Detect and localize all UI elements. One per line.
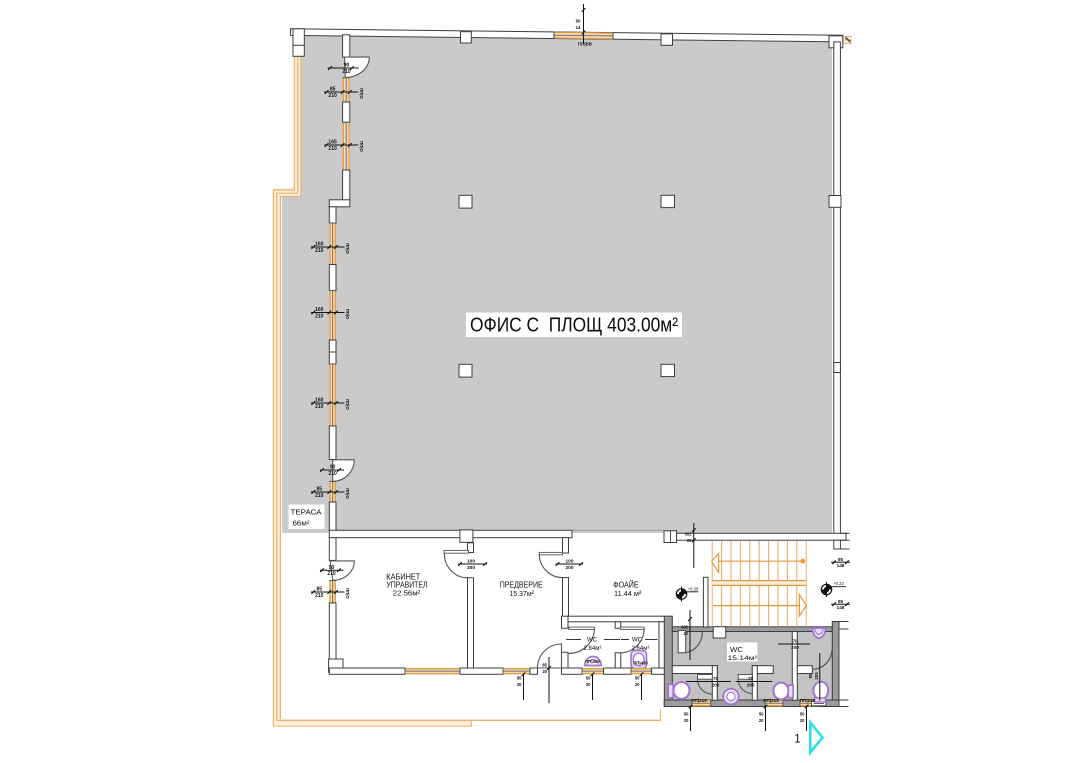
svg-text:20: 20: [759, 718, 764, 723]
svg-text:66м²: 66м²: [293, 521, 311, 528]
svg-text:210: 210: [315, 493, 324, 499]
svg-text:2.84м²: 2.84м²: [584, 646, 602, 652]
svg-text:ПП|215: ПП|215: [800, 698, 816, 703]
svg-text:20: 20: [684, 718, 689, 723]
svg-text:200: 200: [467, 565, 475, 571]
svg-text:15.37м²: 15.37м²: [509, 589, 534, 598]
svg-text:100: 100: [467, 559, 475, 565]
svg-text:ПП|215: ПП|215: [763, 698, 779, 703]
svg-text:ПП|О: ПП|О: [345, 488, 350, 499]
svg-text:ПП|215: ПП|215: [691, 698, 707, 703]
svg-text:WC: WC: [632, 637, 643, 644]
svg-text:85: 85: [317, 587, 323, 593]
svg-text:50: 50: [576, 19, 581, 24]
svg-text:ПП|О: ПП|О: [359, 88, 364, 99]
svg-text:70: 70: [748, 676, 754, 681]
svg-text:210: 210: [315, 593, 324, 599]
svg-text:20: 20: [635, 682, 640, 687]
svg-text:100: 100: [565, 559, 573, 565]
svg-text:14: 14: [576, 25, 581, 30]
svg-text:210: 210: [315, 314, 324, 320]
svg-text:ПП|О: ПП|О: [345, 588, 350, 599]
svg-text:85: 85: [317, 487, 323, 493]
svg-text:148: 148: [837, 563, 845, 568]
svg-text:70: 70: [713, 676, 719, 681]
svg-text:210: 210: [315, 404, 324, 410]
svg-text:ПП|О: ПП|О: [345, 243, 350, 254]
svg-text:20: 20: [683, 631, 688, 636]
svg-text:90: 90: [330, 465, 336, 471]
svg-text:WC: WC: [587, 637, 598, 644]
svg-text:85: 85: [838, 599, 844, 604]
svg-text:ПП|О: ПП|О: [345, 399, 350, 410]
svg-text:50: 50: [759, 712, 764, 717]
svg-text:20: 20: [800, 718, 805, 723]
svg-text:ТЕРАСА: ТЕРАСА: [291, 508, 323, 517]
svg-text:ОФИС С ПЛОЩ 403.00м²: ОФИС С ПЛОЩ 403.00м²: [470, 315, 678, 337]
svg-text:210: 210: [327, 571, 336, 577]
svg-text:85: 85: [517, 676, 522, 681]
svg-text:50: 50: [684, 712, 689, 717]
svg-text:200: 200: [791, 645, 799, 650]
svg-text:302: 302: [685, 532, 693, 537]
svg-text:160: 160: [315, 398, 324, 404]
svg-text:70: 70: [792, 639, 798, 644]
svg-text:20: 20: [586, 682, 591, 687]
svg-text:302: 302: [681, 625, 689, 630]
svg-text:200: 200: [565, 565, 573, 571]
svg-text:ПП|ВВ: ПП|ВВ: [578, 41, 592, 46]
svg-text:+0.30: +0.30: [688, 587, 699, 592]
svg-text:210: 210: [315, 248, 324, 254]
svg-text:200: 200: [712, 683, 720, 688]
svg-text:20: 20: [542, 669, 547, 674]
svg-text:11.44 м²: 11.44 м²: [614, 589, 642, 598]
svg-text:WC: WC: [730, 647, 743, 654]
svg-text:148: 148: [837, 605, 845, 610]
svg-text:85: 85: [542, 663, 547, 668]
svg-text:ПП|О: ПП|О: [359, 141, 364, 152]
svg-text:90: 90: [808, 673, 813, 678]
svg-text:+0.22: +0.22: [833, 581, 844, 586]
svg-text:22.56м²: 22.56м²: [393, 589, 421, 598]
svg-text:ПП|430: ПП|430: [633, 661, 648, 666]
svg-text:200: 200: [747, 683, 755, 688]
svg-text:210: 210: [328, 93, 337, 99]
svg-text:90: 90: [344, 63, 350, 69]
svg-text:50: 50: [586, 676, 591, 681]
svg-text:210: 210: [328, 471, 337, 477]
svg-text:85: 85: [330, 87, 336, 93]
svg-text:15.14м²: 15.14м²: [728, 655, 759, 662]
svg-text:205: 205: [814, 672, 819, 680]
svg-text:85: 85: [838, 557, 844, 562]
svg-text:1: 1: [794, 734, 800, 746]
svg-text:50: 50: [635, 676, 640, 681]
svg-text:20: 20: [517, 682, 522, 687]
svg-text:90: 90: [329, 565, 335, 571]
svg-text:210: 210: [328, 146, 337, 152]
svg-text:160: 160: [315, 242, 324, 248]
svg-text:160: 160: [315, 307, 324, 313]
svg-text:50: 50: [800, 712, 805, 717]
svg-text:20: 20: [687, 538, 692, 543]
svg-text:210: 210: [342, 69, 351, 75]
svg-text:ПП|О: ПП|О: [345, 309, 350, 320]
svg-text:165: 165: [328, 140, 337, 146]
svg-text:ПП|450: ПП|450: [585, 659, 600, 664]
